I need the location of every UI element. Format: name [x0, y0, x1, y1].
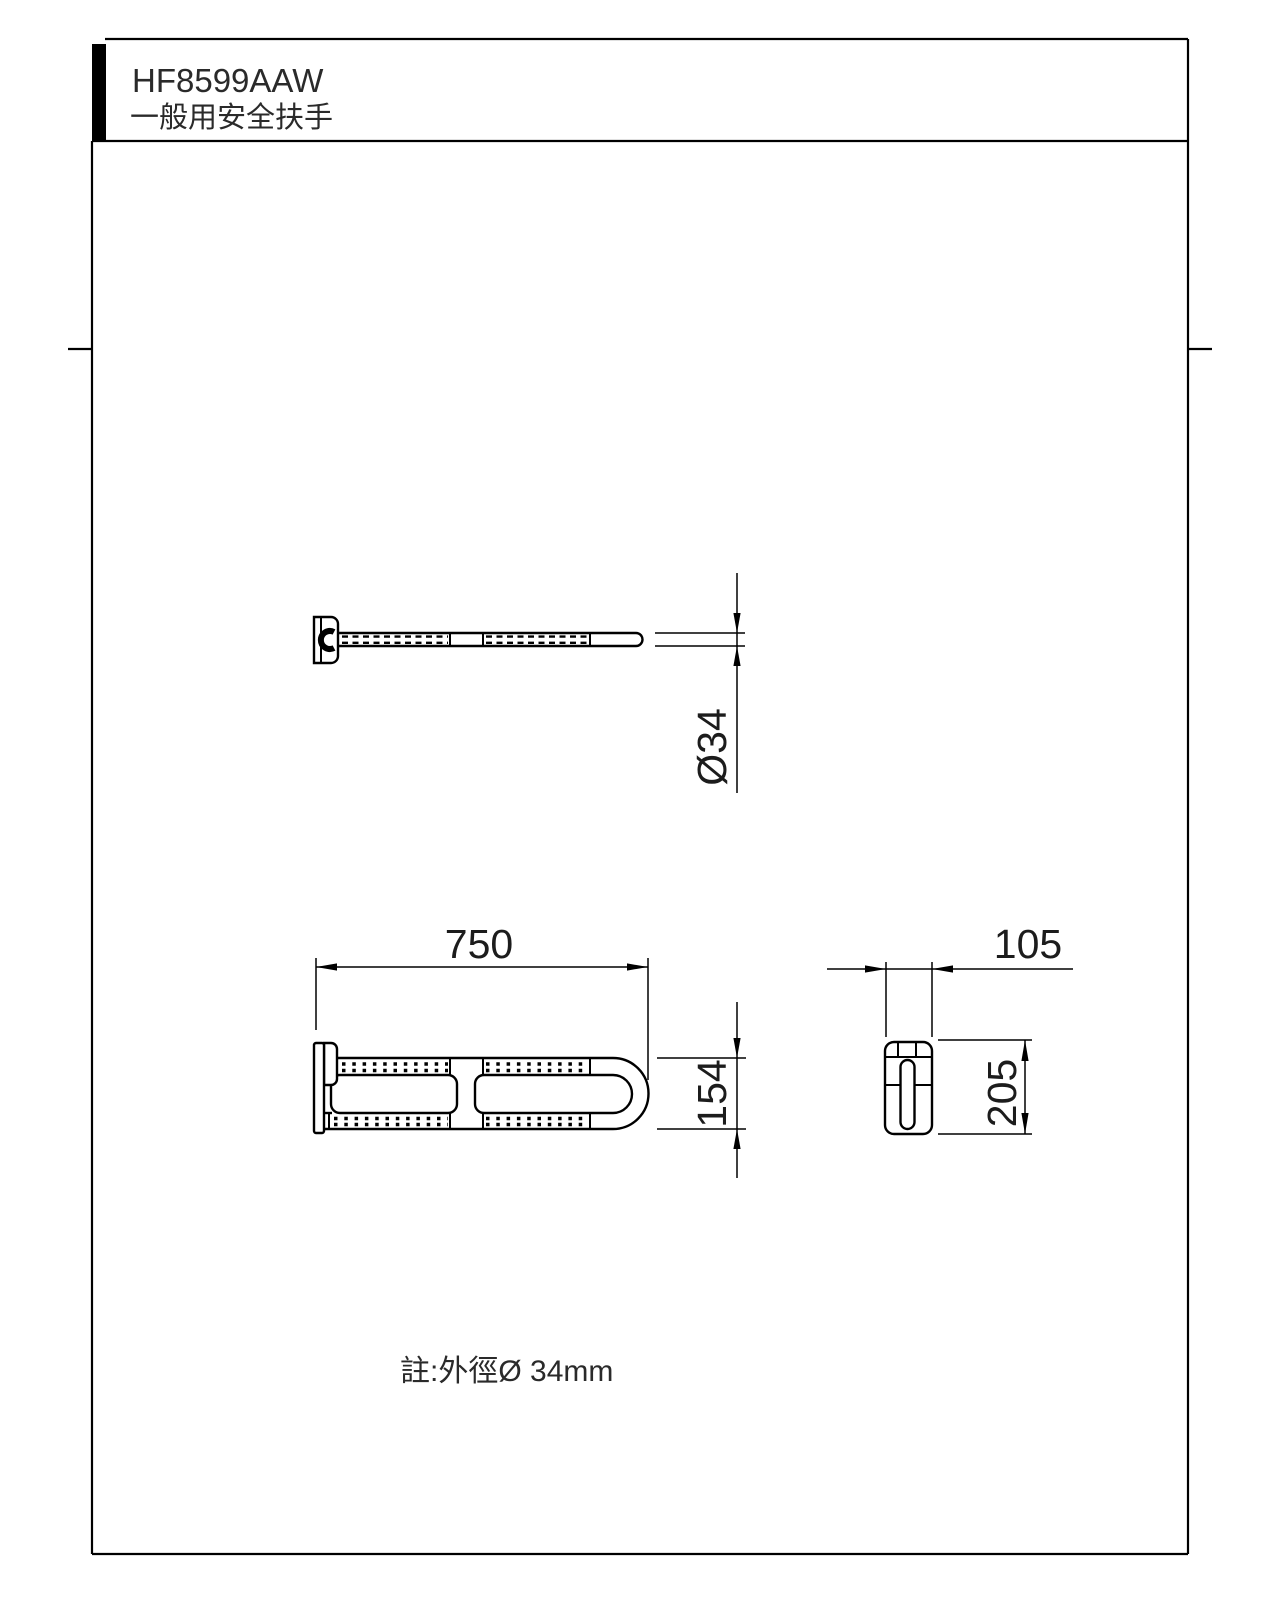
plate-height-dimension: 205 — [938, 1040, 1032, 1134]
depth-label: 105 — [994, 921, 1062, 967]
arrowhead — [733, 646, 740, 666]
bar-top-outline — [338, 633, 643, 646]
pivot-bracket — [324, 1043, 337, 1085]
u-bend-outer-arc — [613, 1058, 649, 1129]
plate-height-label: 205 — [979, 1059, 1025, 1127]
arrowhead — [733, 613, 740, 633]
product-code: HF8599AAW — [132, 62, 324, 99]
knurl-texture — [342, 637, 588, 643]
plate-side-outline — [885, 1042, 932, 1134]
spec-sheet-page: HF8599AAW 一般用安全扶手 Ø34 — [0, 0, 1280, 1600]
front-view-drawing — [314, 1043, 649, 1133]
title-accent-bar — [92, 44, 106, 141]
side-view-drawing — [885, 1042, 932, 1134]
wall-plate-front — [314, 1043, 324, 1133]
bar-loop-slot — [901, 1060, 915, 1129]
arrowhead — [865, 965, 886, 972]
height-dimension: 154 — [657, 1002, 746, 1178]
inner-contour-right — [475, 1075, 632, 1113]
product-name: 一般用安全扶手 — [130, 101, 333, 134]
top-view-drawing — [314, 617, 643, 663]
knurl-texture — [334, 1064, 588, 1125]
title-block: HF8599AAW 一般用安全扶手 — [92, 44, 333, 141]
arrowhead — [1021, 1040, 1028, 1061]
arrowhead — [932, 965, 953, 972]
length-dimension: 750 — [316, 921, 648, 1080]
diameter-dimension: Ø34 — [655, 573, 745, 793]
wall-plate-top-outline — [314, 617, 338, 663]
arrowhead — [733, 1038, 740, 1058]
height-label: 154 — [689, 1059, 735, 1127]
pivot-socket — [321, 631, 334, 649]
page-frame — [68, 39, 1212, 1554]
arrowhead — [316, 963, 337, 970]
depth-dimension: 105 — [827, 921, 1073, 1037]
diameter-label: Ø34 — [689, 708, 735, 786]
arrowhead — [733, 1129, 740, 1149]
note-text: 註:外徑Ø 34mm — [400, 1355, 613, 1388]
inner-contour-left — [331, 1075, 457, 1113]
arrowhead — [627, 963, 648, 970]
length-label: 750 — [445, 921, 513, 967]
